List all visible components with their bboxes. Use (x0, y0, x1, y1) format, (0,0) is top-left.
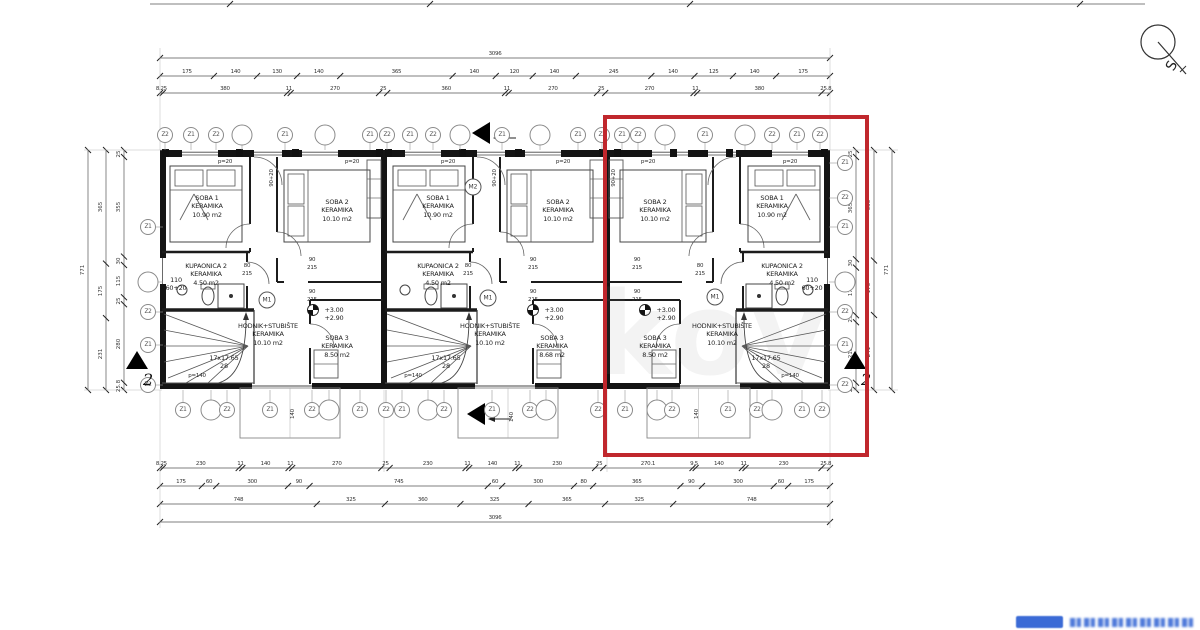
dim-value: 140 (488, 461, 498, 467)
room-label-line: KERAMIKA (321, 206, 353, 214)
small-dim-text: p=140 (188, 373, 206, 379)
grid-bubble-blank (530, 125, 551, 146)
dim-value: 25 (598, 86, 604, 92)
room-label-line: KERAMIKA (542, 206, 574, 214)
grid-bubble: Z2 (157, 127, 173, 143)
room-label: SOBA 1KERAMIKA10.90 m2 (422, 194, 454, 219)
dim-value: 11 (286, 86, 292, 92)
dim-value: 380 (755, 86, 765, 92)
small-dim-text: 215 (528, 297, 538, 303)
dim-value: 365 (98, 202, 104, 213)
room-label: 17x17.6528 (431, 354, 460, 371)
grid-bubble: Z2 (436, 402, 452, 418)
dim-value: 771 (80, 265, 86, 276)
dim-value: 140 (668, 69, 678, 75)
room-label: HODNIK+STUBIŠTEKERAMIKA10.10 m2 (460, 322, 520, 347)
room-label-line: KERAMIKA (238, 330, 298, 338)
grid-bubble: Z2 (140, 304, 156, 320)
grid-bubble: Z2 (378, 402, 394, 418)
small-dim-text: p=20 (441, 159, 455, 165)
dim-value: 175 (98, 286, 104, 297)
dim-value: 25 (116, 150, 122, 157)
room-label: +3.00+2.90 (325, 306, 344, 323)
grid-bubble-blank (319, 400, 340, 421)
room-label-line: KERAMIKA (417, 270, 459, 278)
room-label-line: KUPAONICA 2 (417, 262, 459, 270)
grid-bubble: Z1 (402, 127, 418, 143)
dim-value: 771 (884, 265, 890, 276)
small-dim-text: 215 (528, 265, 538, 271)
dim-value: 25.8 (820, 86, 831, 92)
room-label-line: 4.50 m2 (417, 279, 459, 287)
dim-value: 270 (645, 86, 655, 92)
room-label-line: SOBA 2 (542, 198, 574, 206)
dim-value: 365 (392, 69, 402, 75)
room-label-line: 17x17.65 (431, 354, 460, 362)
room-label: 17x17.6528 (209, 354, 238, 371)
grid-bubble-blank (315, 125, 336, 146)
dim-value: 175 (804, 479, 814, 485)
dim-value: 90 (688, 479, 694, 485)
dim-value: 60 (206, 479, 212, 485)
dim-value: 245 (609, 69, 619, 75)
room-label: +3.00+2.90 (545, 306, 564, 323)
room-label-line: SOBA 1 (422, 194, 454, 202)
section-number: 2 (143, 370, 153, 389)
dim-value: 90 (296, 479, 302, 485)
room-label-line: +2.90 (325, 314, 344, 322)
dim-value: 280 (116, 338, 122, 349)
dim-value: 270 (332, 461, 342, 467)
grid-bubble: Z1 (277, 127, 293, 143)
dim-value: 230 (779, 461, 789, 467)
dim-value: 748 (747, 497, 757, 503)
dim-value: 11 (287, 461, 293, 467)
shaft-marker: M1 (259, 292, 276, 309)
small-dim-text: 90+20 (269, 169, 275, 187)
dim-value: 365 (562, 497, 572, 503)
room-label: 11060+20 (166, 276, 187, 293)
room-label-line: 10.90 m2 (422, 211, 454, 219)
dim-value: 270 (330, 86, 340, 92)
room-label-line: KERAMIKA (422, 202, 454, 210)
small-dim-text: 215 (307, 265, 317, 271)
room-label-line: 8.68 m2 (536, 351, 568, 359)
dim-value: 355 (116, 202, 122, 213)
grid-bubble: Z1 (352, 402, 368, 418)
dim-value: 325 (634, 497, 644, 503)
room-label-line: KERAMIKA (460, 330, 520, 338)
room-label-line: SOBA 2 (321, 198, 353, 206)
dim-value: 230 (552, 461, 562, 467)
grid-bubble: Z1 (140, 337, 156, 353)
dim-value: 175 (798, 69, 808, 75)
dim-value: 175 (182, 69, 192, 75)
small-dim-text: p=140 (404, 373, 422, 379)
dim-value: 325 (346, 497, 356, 503)
room-label: KUPAONICA 2KERAMIKA4.50 m2 (185, 262, 227, 287)
dim-value: 11 (740, 461, 746, 467)
room-label: SOBA 2KERAMIKA10.10 m2 (321, 198, 353, 223)
dim-value: 25 (596, 461, 602, 467)
dim-value: 325 (490, 497, 500, 503)
grid-bubble-blank (138, 272, 159, 293)
dim-value: 360 (418, 497, 428, 503)
room-label-line: 10.10 m2 (542, 215, 574, 223)
room-label: HODNIK+STUBIŠTEKERAMIKA10.10 m2 (238, 322, 298, 347)
room-label-line: 8.50 m2 (321, 351, 353, 359)
dim-value: 11 (514, 461, 520, 467)
shaft-marker: M1 (480, 290, 497, 307)
floor-plan-page: kov 309617514013014036514012014024514012… (0, 0, 1200, 630)
footer-logo-text (1070, 618, 1196, 627)
grid-bubble: Z1 (183, 127, 199, 143)
dim-value: 3096 (489, 515, 502, 521)
room-label-line: HODNIK+STUBIŠTE (460, 322, 520, 330)
dim-value: 175 (176, 479, 186, 485)
room-label-line: 10.10 m2 (460, 339, 520, 347)
room-label-line: SOBA 1 (191, 194, 223, 202)
dim-value: 130 (272, 69, 282, 75)
room-label-line: SOBA 3 (321, 334, 353, 342)
dim-value: 60 (492, 479, 498, 485)
grid-bubble: Z1 (494, 127, 510, 143)
room-label-line: KUPAONICA 2 (185, 262, 227, 270)
room-label-line: KERAMIKA (185, 270, 227, 278)
dim-value: 140 (231, 69, 241, 75)
small-dim-text: p=20 (556, 159, 570, 165)
dim-value: 300 (733, 479, 743, 485)
dim-value: 25.8 (116, 380, 122, 392)
grid-bubble: Z1 (394, 402, 410, 418)
grid-bubble: Z2 (379, 127, 395, 143)
room-label-line: 10.90 m2 (191, 211, 223, 219)
dim-value: 125 (709, 69, 719, 75)
grid-bubble: Z1 (175, 402, 191, 418)
small-dim-text: p=20 (218, 159, 232, 165)
dim-value: 140 (469, 69, 479, 75)
room-label: SOBA 2KERAMIKA10.10 m2 (542, 198, 574, 223)
dim-value: 745 (394, 479, 404, 485)
grid-bubble: Z2 (208, 127, 224, 143)
room-label-line: 10.10 m2 (321, 215, 353, 223)
grid-bubble: Z1 (484, 402, 500, 418)
room-label: SOBA 1KERAMIKA10.90 m2 (191, 194, 223, 219)
small-dim-text: 140 (290, 409, 296, 419)
north-compass-icon: S (1120, 8, 1200, 98)
dim-value: 30 (116, 257, 122, 264)
dim-value: 230 (423, 461, 433, 467)
dim-value: 9.5 (690, 461, 698, 467)
dim-value: 25.8 (820, 461, 831, 467)
dim-value: 140 (549, 69, 559, 75)
room-label-line: +3.00 (325, 306, 344, 314)
grid-bubble: Z2 (219, 402, 235, 418)
room-label-line: 28 (209, 362, 238, 370)
dim-value: 231 (98, 349, 104, 360)
dim-value: 60 (778, 479, 784, 485)
dim-value: 8.25 (156, 86, 167, 92)
small-dim-text: 215 (307, 297, 317, 303)
dim-value: 25 (116, 297, 122, 304)
dim-value: 11 (464, 461, 470, 467)
highlight-box (603, 115, 869, 457)
grid-bubble: Z1 (570, 127, 586, 143)
dim-value: 25 (380, 86, 386, 92)
room-label-line: 17x17.65 (209, 354, 238, 362)
room-label-line: 10.10 m2 (238, 339, 298, 347)
room-label: SOBA 3KERAMIKA8.68 m2 (536, 334, 568, 359)
room-label-line: 28 (431, 362, 460, 370)
dim-value: 748 (234, 497, 244, 503)
dim-value: 140 (714, 461, 724, 467)
small-dim-text: 90 (309, 257, 316, 263)
room-label-line: +3.00 (545, 306, 564, 314)
dim-value: 365 (632, 479, 642, 485)
dim-value: 140 (314, 69, 324, 75)
dim-value: 300 (533, 479, 543, 485)
dim-value: 380 (220, 86, 230, 92)
footer-logo-mark (1016, 616, 1063, 628)
room-label-line: KERAMIKA (191, 202, 223, 210)
room-label-line: KERAMIKA (536, 342, 568, 350)
dim-value: 230 (196, 461, 206, 467)
dim-value: 270.1 (641, 461, 655, 467)
grid-bubble: Z1 (140, 219, 156, 235)
dim-value: 11 (692, 86, 698, 92)
dim-value: 80 (580, 479, 586, 485)
grid-bubble-blank (450, 125, 471, 146)
room-label-line: SOBA 3 (536, 334, 568, 342)
room-label-line: +2.90 (545, 314, 564, 322)
dim-value: 25 (382, 461, 388, 467)
dim-value: 270 (548, 86, 558, 92)
dim-value: 300 (247, 479, 257, 485)
dim-value: 140 (261, 461, 271, 467)
small-dim-text: 90+20 (492, 169, 498, 187)
dim-value: 115 (116, 276, 122, 287)
grid-bubble: Z2 (425, 127, 441, 143)
dim-value: 360 (441, 86, 451, 92)
grid-bubble: Z1 (262, 402, 278, 418)
grid-bubble-blank (232, 125, 253, 146)
grid-bubble: Z1 (362, 127, 378, 143)
small-dim-text: 215 (242, 271, 252, 277)
room-label: KUPAONICA 2KERAMIKA4.50 m2 (417, 262, 459, 287)
room-label-line: KERAMIKA (321, 342, 353, 350)
small-dim-text: 90 (309, 289, 316, 295)
small-dim-text: 215 (463, 271, 473, 277)
small-dim-text: 80 (244, 263, 251, 269)
room-label-line: 60+20 (166, 284, 187, 292)
dim-value: 140 (750, 69, 760, 75)
dim-value: 3096 (489, 51, 502, 57)
dim-value: 8.25 (156, 461, 167, 467)
grid-bubble-blank (536, 400, 557, 421)
small-dim-text: 90 (530, 289, 537, 295)
shaft-marker: M2 (465, 179, 482, 196)
room-label-line: 4.50 m2 (185, 279, 227, 287)
text-layer: 3096175140130140365140120140245140125140… (0, 0, 1200, 630)
room-label-line: 110 (166, 276, 187, 284)
compass-south-label: S (1163, 58, 1181, 73)
dim-value: 11 (237, 461, 243, 467)
room-label: SOBA 3KERAMIKA8.50 m2 (321, 334, 353, 359)
dim-value: 11 (504, 86, 510, 92)
small-dim-text: p=20 (345, 159, 359, 165)
small-dim-text: 90 (530, 257, 537, 263)
room-label-line: HODNIK+STUBIŠTE (238, 322, 298, 330)
small-dim-text: 80 (465, 263, 472, 269)
small-dim-text: 140 (509, 412, 515, 422)
dim-value: 120 (509, 69, 519, 75)
